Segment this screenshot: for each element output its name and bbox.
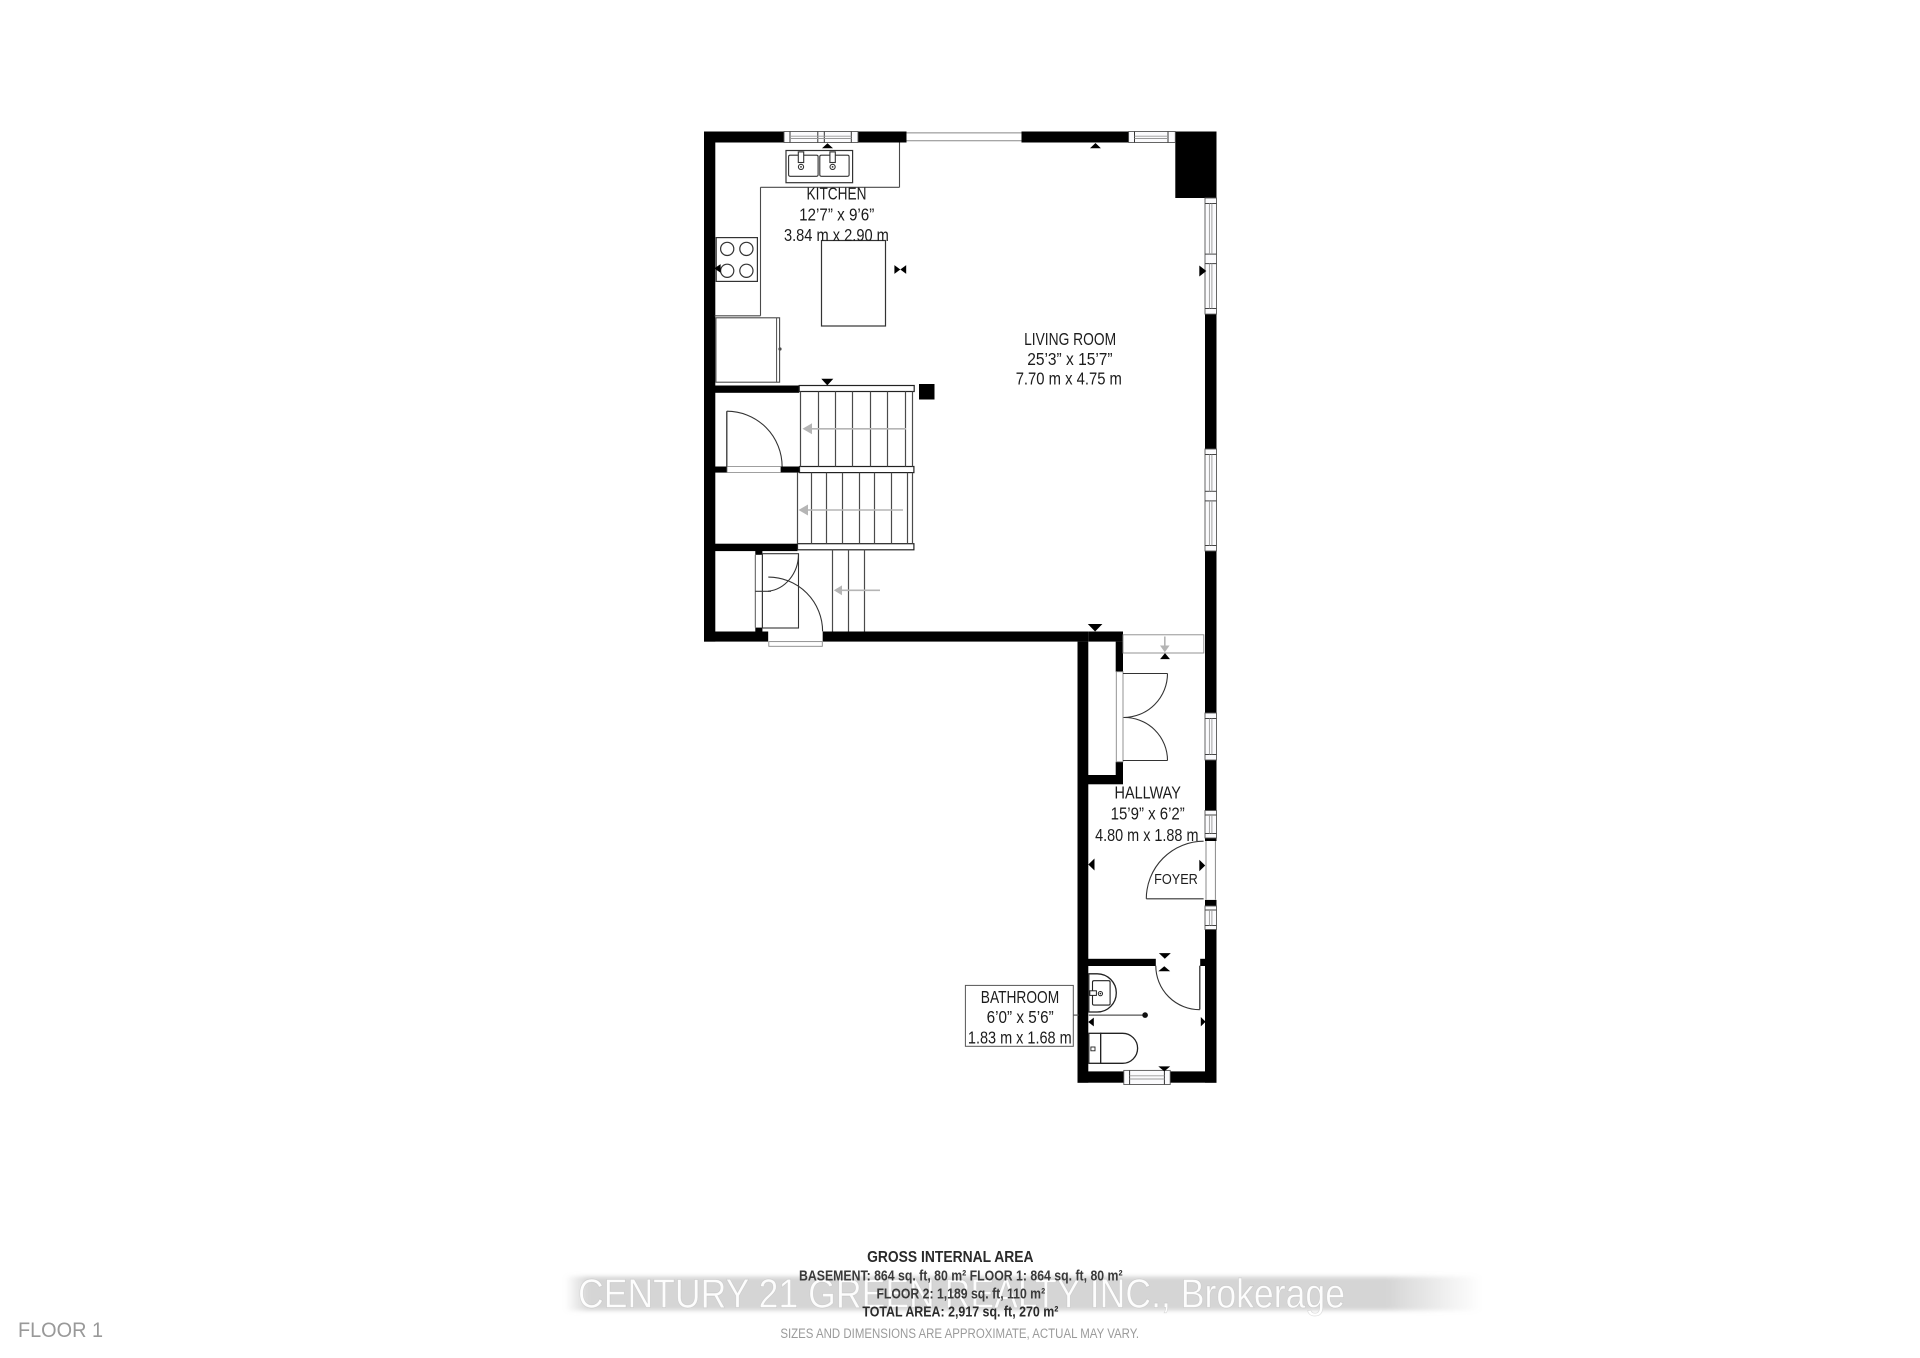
svg-text:6’0” x 5’6”: 6’0” x 5’6” <box>987 1007 1054 1027</box>
svg-text:1.83 m x 1.68 m: 1.83 m x 1.68 m <box>968 1027 1072 1047</box>
svg-text:LIVING ROOM: LIVING ROOM <box>1024 329 1116 349</box>
svg-text:BATHROOM: BATHROOM <box>981 987 1059 1007</box>
svg-text:7.70 m x 4.75 m: 7.70 m x 4.75 m <box>1016 369 1122 389</box>
svg-text:25’3” x 15’7”: 25’3” x 15’7” <box>1027 349 1113 369</box>
svg-text:3.84 m x 2.90 m: 3.84 m x 2.90 m <box>784 225 889 245</box>
svg-text:GROSS INTERNAL AREA: GROSS INTERNAL AREA <box>867 1249 1033 1266</box>
svg-text:BASEMENT: 864 sq. ft, 80 m² FL: BASEMENT: 864 sq. ft, 80 m² FLOOR 1: 864… <box>799 1268 1123 1285</box>
svg-text:KITCHEN: KITCHEN <box>807 184 867 204</box>
svg-text:FLOOR 1: FLOOR 1 <box>18 1318 103 1342</box>
svg-text:HALLWAY: HALLWAY <box>1115 782 1182 802</box>
svg-text:SIZES AND DIMENSIONS ARE APPRO: SIZES AND DIMENSIONS ARE APPROXIMATE, AC… <box>780 1326 1139 1341</box>
svg-text:15’9” x 6’2”: 15’9” x 6’2” <box>1111 804 1185 824</box>
svg-text:FLOOR 2: 1,189 sq. ft, 110 m²: FLOOR 2: 1,189 sq. ft, 110 m² <box>876 1286 1045 1303</box>
svg-text:FOYER: FOYER <box>1154 871 1198 888</box>
svg-text:12’7” x 9’6”: 12’7” x 9’6” <box>799 205 874 225</box>
svg-text:4.80 m x 1.88 m: 4.80 m x 1.88 m <box>1095 825 1198 845</box>
svg-text:TOTAL AREA: 2,917 sq. ft, 270: TOTAL AREA: 2,917 sq. ft, 270 m² <box>862 1304 1058 1321</box>
